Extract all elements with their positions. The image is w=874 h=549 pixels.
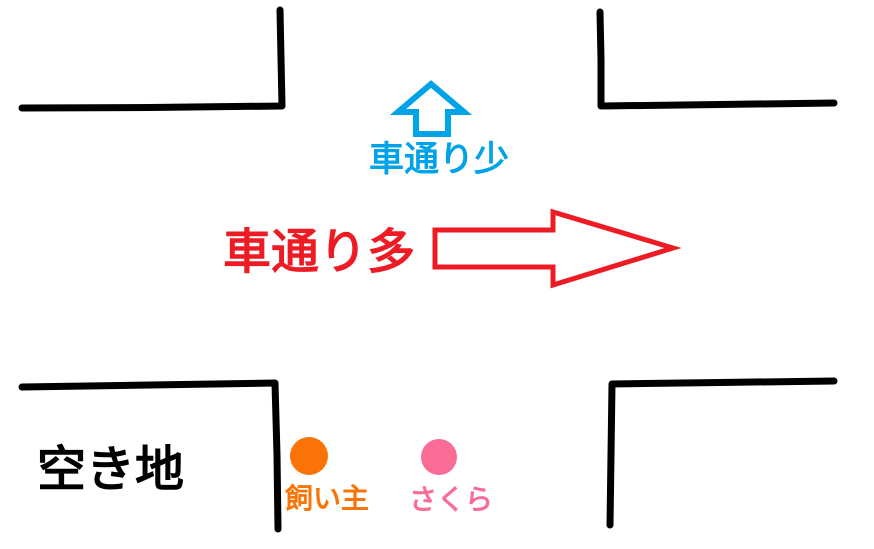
owner-dot <box>290 437 328 475</box>
owner-label: 飼い主 <box>285 482 369 515</box>
vacant-lot-label: 空き地 <box>37 441 184 498</box>
intersection-diagram: 車通り少 車通り多 空き地 飼い主 さくら <box>0 0 874 549</box>
paint-canvas: 車通り少 車通り多 空き地 飼い主 さくら <box>0 0 874 549</box>
sakura-dot <box>421 439 457 475</box>
road-corner-top-left <box>22 10 282 108</box>
sakura-label: さくら <box>409 483 493 516</box>
road-corner-bottom-right <box>610 381 834 525</box>
low-traffic-label: 車通り少 <box>369 140 509 180</box>
road-corner-top-right <box>600 12 834 106</box>
right-arrow-icon <box>435 212 673 285</box>
high-traffic-label: 車通り多 <box>223 224 415 280</box>
up-arrow-icon <box>398 84 464 134</box>
